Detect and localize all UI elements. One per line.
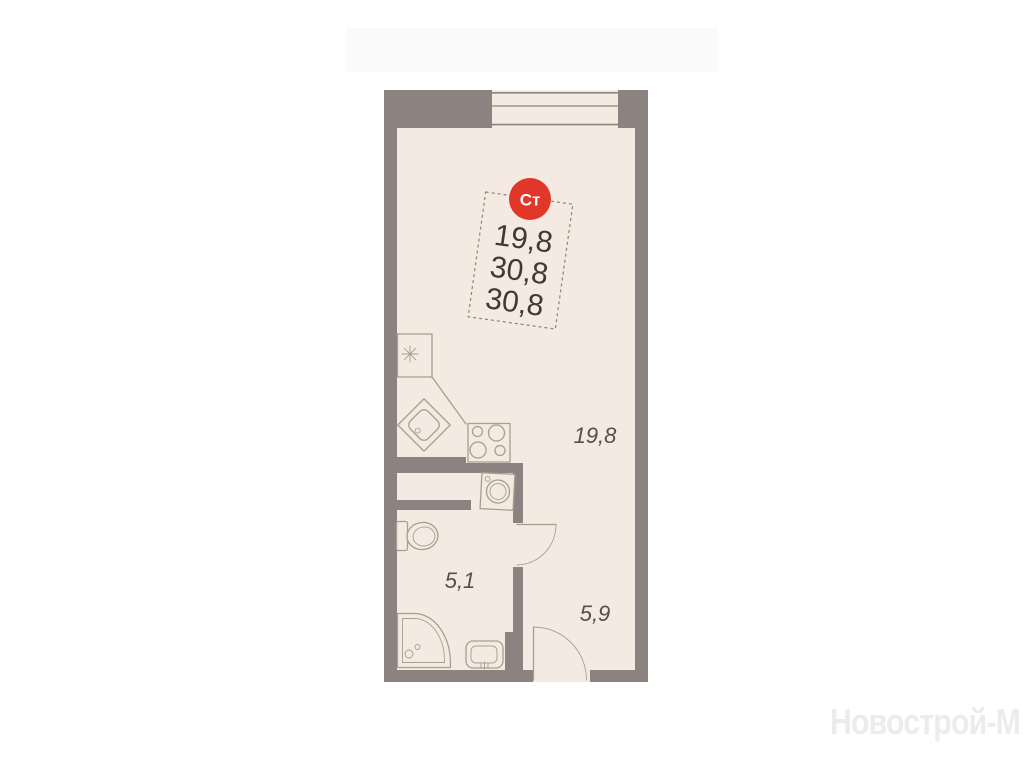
room-label-hallway: 5,9 xyxy=(580,601,611,626)
washing-machine xyxy=(480,473,515,511)
wall-segment xyxy=(635,128,648,682)
badge-label: Ст xyxy=(520,191,541,210)
wall-segment xyxy=(513,567,523,670)
neighbor-unit-ghost xyxy=(346,28,718,72)
room-label-living: 19,8 xyxy=(574,423,618,448)
wall-segment xyxy=(384,90,492,128)
wall-segment xyxy=(384,128,397,682)
floorplan-canvas: 19,8 30,8 30,8 Ст 19,8 5,1 5,9 Новострой… xyxy=(0,0,1024,768)
stove xyxy=(468,424,510,463)
kitchen-unit xyxy=(398,334,433,377)
wall-segment xyxy=(397,457,466,473)
vent-asterisk-icon xyxy=(402,346,418,362)
wall-segment xyxy=(397,500,471,510)
room-label-bathroom: 5,1 xyxy=(445,568,476,593)
wall-segment xyxy=(384,670,533,682)
wall-segment xyxy=(590,670,648,682)
bathroom-sink xyxy=(466,641,503,669)
wall-segment xyxy=(505,632,513,670)
wall-segment xyxy=(618,90,648,128)
toilet-tank xyxy=(397,522,408,551)
unit-type-badge: Ст xyxy=(509,178,551,220)
watermark-text: Новострой-М xyxy=(830,701,1020,742)
floorplan-svg: 19,8 30,8 30,8 Ст 19,8 5,1 5,9 Новострой… xyxy=(0,0,1024,768)
